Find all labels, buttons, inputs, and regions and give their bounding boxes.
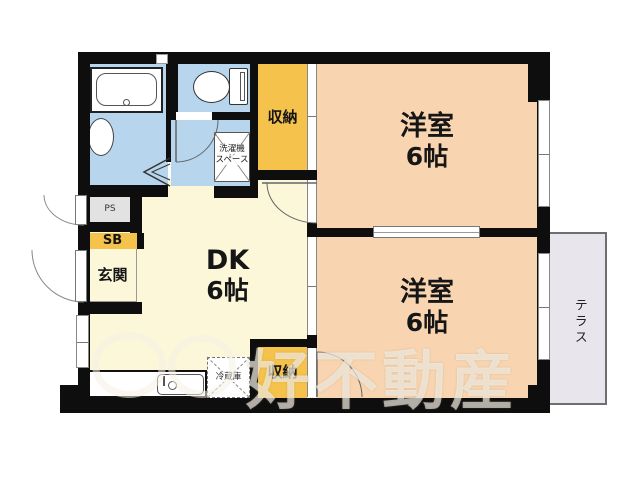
bedroom2-door-opening — [307, 348, 317, 397]
top-wall-vent — [156, 54, 168, 64]
bedroom-1-name: 洋室 — [400, 111, 454, 142]
wall-hall-bottom — [214, 186, 258, 198]
wall-ps-right — [130, 197, 142, 233]
wall-hall-closet — [250, 52, 258, 186]
dk-size: 6帖 — [206, 276, 248, 305]
wall-closet-upper-bottom — [258, 170, 307, 180]
wall-washroom-bottom — [78, 185, 168, 197]
refrigerator-text: 冷蔵庫 — [215, 372, 243, 382]
shoe-box-label: SB — [88, 234, 137, 249]
window-left — [76, 315, 89, 368]
bathtub-drain-icon — [123, 99, 130, 106]
closet-lower-label: 収納 — [258, 364, 307, 381]
wall-stub-3 — [307, 335, 317, 348]
laundry-line1: 洗濯機 — [218, 144, 246, 154]
wall-stub-1 — [307, 170, 317, 180]
bedroom-2-size: 6帖 — [406, 308, 448, 337]
wall-top — [78, 52, 550, 64]
wall-entrance-bottom — [78, 302, 142, 314]
toilet-tank-icon — [229, 68, 248, 105]
window-right-bedroom2 — [538, 253, 550, 360]
wall-corner-topright — [528, 52, 550, 102]
wall-stub-2 — [307, 223, 317, 237]
faucet-icon — [168, 381, 177, 390]
wall-room-divider-right — [480, 228, 537, 237]
wall-bottom — [78, 398, 550, 413]
bedroom-2-label: 洋室 6帖 — [317, 278, 537, 338]
wall-sb-right — [137, 233, 144, 249]
entrance-door-leaf — [75, 250, 87, 302]
bedroom1-door-opening — [307, 180, 317, 223]
closet-upper-sliding-door — [307, 64, 317, 170]
pipe-space-label: PS — [90, 204, 130, 214]
refrigerator-label: 冷蔵庫 — [207, 372, 250, 383]
terrace-label: テラス — [550, 252, 607, 392]
window-right-bedroom1 — [538, 100, 550, 207]
room-divider-sliding-door — [373, 226, 480, 238]
wall-corner-bottomleft — [60, 385, 90, 413]
toilet-bowl-icon — [193, 71, 230, 103]
dk-name: DK — [206, 245, 249, 276]
wall-closet-lower-left — [250, 339, 258, 398]
dk-label: DK 6帖 — [145, 246, 310, 306]
floor-plan: 洋室 6帖 洋室 6帖 DK 6帖 玄関 SB PS 収納 収納 洗濯機 スペー… — [0, 0, 640, 480]
closet-upper-label: 収納 — [258, 109, 307, 126]
washbasin-icon — [88, 118, 114, 156]
ps-door-leaf — [75, 195, 87, 225]
bedroom-2-name: 洋室 — [400, 277, 454, 308]
entrance-label: 玄関 — [88, 267, 137, 284]
laundry-line2: スペース — [215, 155, 250, 165]
terrace-text: テラス — [571, 298, 586, 346]
bedroom-1-label: 洋室 6帖 — [317, 112, 537, 172]
wall-corner-bottomright — [528, 385, 550, 413]
toilet-door-opening — [176, 112, 212, 120]
wall-room-divider-left — [317, 228, 373, 237]
bedroom-1-size: 6帖 — [406, 142, 448, 171]
wall-closet-lower-top — [258, 339, 307, 347]
faucet-handle — [163, 376, 165, 386]
laundry-space-label: 洗濯機 スペース — [214, 144, 250, 165]
toilet-tank-lid — [240, 72, 245, 101]
wall-washroom-hall — [166, 116, 171, 162]
